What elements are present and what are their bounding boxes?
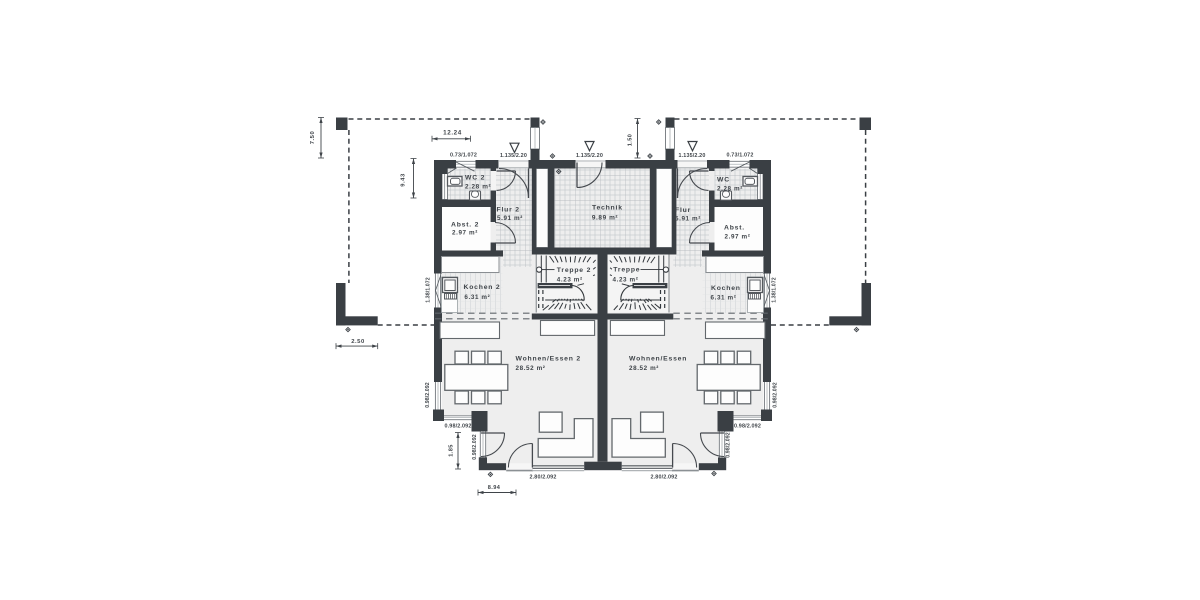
svg-text:WC: WC xyxy=(717,177,730,184)
svg-text:1.38/1.072: 1.38/1.072 xyxy=(772,277,778,303)
svg-text:2.28 m²: 2.28 m² xyxy=(465,184,491,191)
svg-text:8.94: 8.94 xyxy=(488,485,501,491)
svg-text:0.98/2.092: 0.98/2.092 xyxy=(734,423,761,429)
svg-text:0.98/2.092: 0.98/2.092 xyxy=(445,423,472,429)
svg-text:4.23 m²: 4.23 m² xyxy=(557,276,583,283)
svg-text:Treppe: Treppe xyxy=(613,267,640,274)
svg-text:0.73/1.072: 0.73/1.072 xyxy=(727,153,754,159)
svg-text:4.23 m²: 4.23 m² xyxy=(613,276,639,283)
svg-text:9.89 m²: 9.89 m² xyxy=(592,215,618,222)
svg-text:28.52 m²: 28.52 m² xyxy=(629,365,659,372)
svg-text:Kochen 2: Kochen 2 xyxy=(464,284,501,291)
svg-text:0.98/2.092: 0.98/2.092 xyxy=(773,382,779,408)
svg-text:1.38/1.072: 1.38/1.072 xyxy=(426,277,432,303)
svg-text:0.98/2.092: 0.98/2.092 xyxy=(425,382,431,408)
svg-text:1.135/2.20: 1.135/2.20 xyxy=(576,153,603,159)
svg-text:1.50: 1.50 xyxy=(628,134,634,147)
svg-text:Flur 2: Flur 2 xyxy=(497,207,520,214)
svg-text:2.97 m²: 2.97 m² xyxy=(725,234,751,241)
svg-text:Wohnen/Essen 2: Wohnen/Essen 2 xyxy=(516,355,581,362)
svg-text:Wohnen/Essen: Wohnen/Essen xyxy=(629,355,687,362)
svg-text:WC 2: WC 2 xyxy=(465,175,485,182)
svg-text:5.91 m²: 5.91 m² xyxy=(497,215,523,222)
svg-text:7.50: 7.50 xyxy=(310,131,316,145)
svg-text:Technik: Technik xyxy=(592,205,623,212)
svg-text:2.97 m²: 2.97 m² xyxy=(452,230,478,237)
svg-text:6.31 m²: 6.31 m² xyxy=(464,294,490,301)
svg-text:Treppe 2: Treppe 2 xyxy=(557,267,591,274)
svg-text:Kochen: Kochen xyxy=(711,285,741,292)
svg-text:0.73/1.072: 0.73/1.072 xyxy=(450,153,477,159)
svg-text:9.43: 9.43 xyxy=(401,173,407,187)
svg-text:2.50: 2.50 xyxy=(351,339,365,345)
svg-text:Flur: Flur xyxy=(675,207,691,214)
svg-text:Abst. 2: Abst. 2 xyxy=(451,222,479,229)
svg-text:28.52 m²: 28.52 m² xyxy=(516,365,546,372)
svg-text:0.98/2.092: 0.98/2.092 xyxy=(472,434,478,460)
svg-text:1.85: 1.85 xyxy=(449,444,455,457)
svg-text:1.135/2.20: 1.135/2.20 xyxy=(679,153,706,159)
svg-text:1.135/2.20: 1.135/2.20 xyxy=(500,153,527,159)
svg-text:2.80/2.092: 2.80/2.092 xyxy=(530,475,557,481)
svg-text:2.28 m²: 2.28 m² xyxy=(717,186,743,193)
svg-text:6.31 m²: 6.31 m² xyxy=(711,295,737,302)
svg-text:12.24: 12.24 xyxy=(443,130,462,137)
svg-text:5.91 m²: 5.91 m² xyxy=(675,216,701,223)
svg-text:2.80/2.092: 2.80/2.092 xyxy=(651,475,678,481)
svg-text:Abst.: Abst. xyxy=(724,225,745,232)
svg-text:0.98/2.092: 0.98/2.092 xyxy=(726,432,732,458)
